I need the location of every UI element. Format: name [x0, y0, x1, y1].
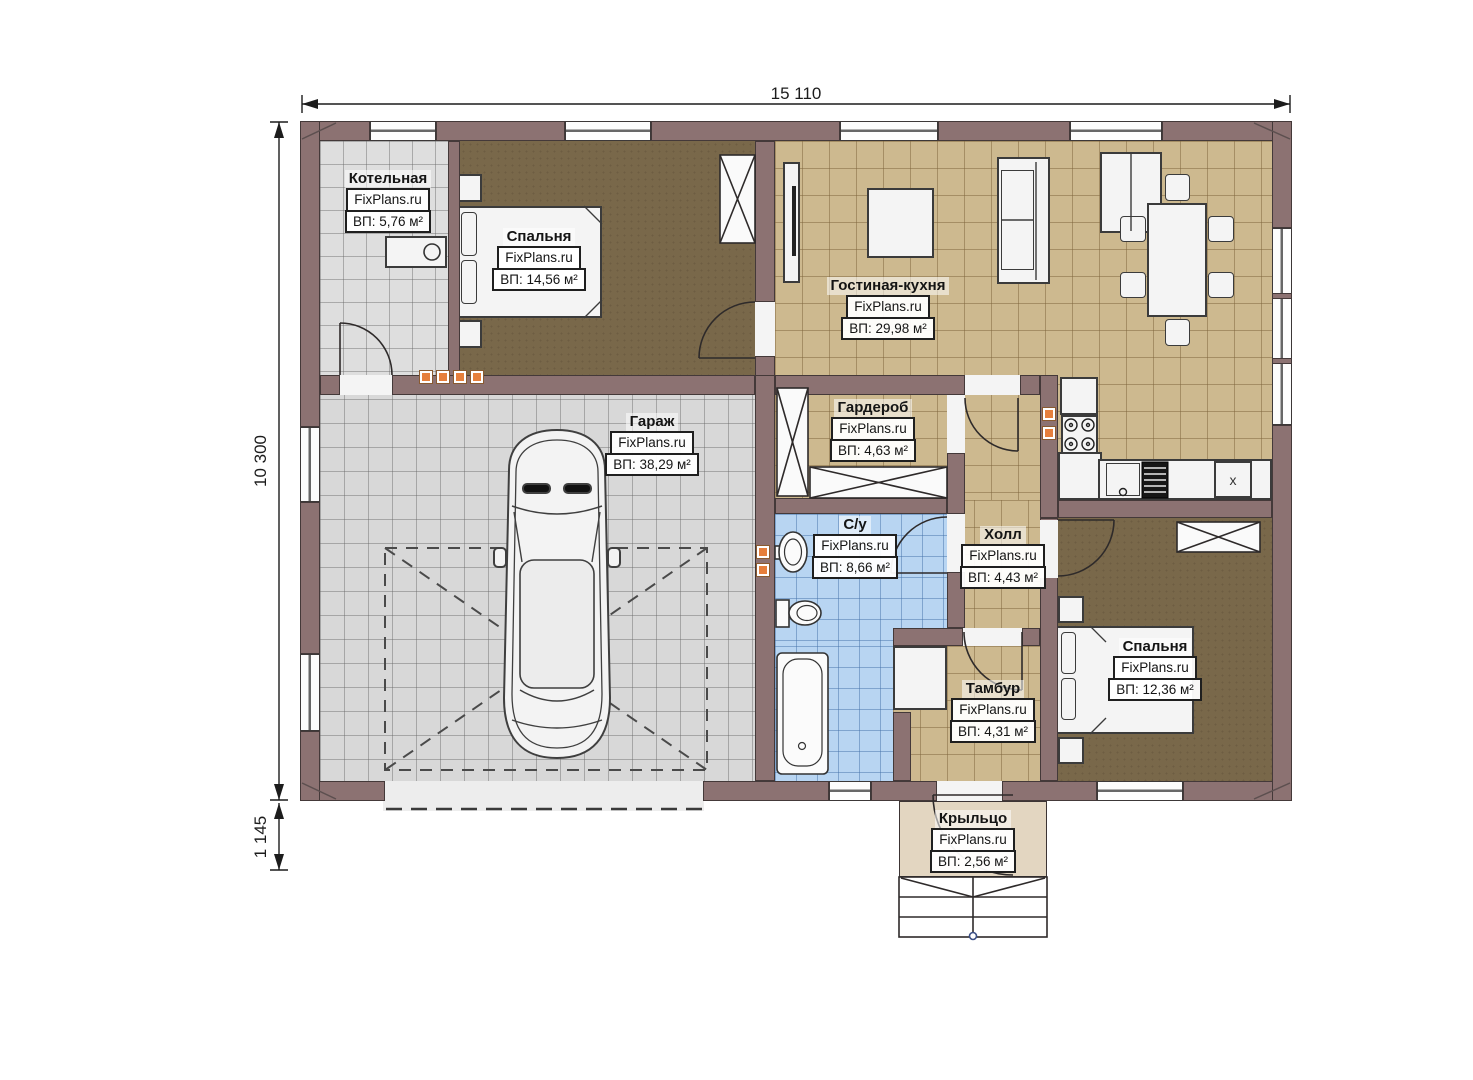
window-mullion	[1272, 293, 1292, 299]
door-opening	[340, 375, 392, 395]
room-area: ВП: 2,56 м²	[930, 850, 1016, 874]
room-label-wardrobe: Гардероб FixPlans.ru ВП: 4,63 м²	[806, 399, 940, 462]
coffee-table	[867, 188, 934, 258]
room-name: Гардероб	[834, 399, 913, 417]
room-area: ВП: 12,36 м²	[1108, 678, 1202, 702]
wall	[775, 498, 947, 514]
watermark: FixPlans.ru	[846, 295, 930, 319]
wall	[893, 628, 963, 646]
kitchen-sink-icon	[1106, 463, 1140, 496]
window	[1097, 781, 1183, 801]
wall	[1022, 628, 1040, 646]
room-area: ВП: 29,98 м²	[841, 317, 935, 341]
vent-icon	[1043, 427, 1055, 439]
dimension-height: 10 300	[251, 411, 271, 511]
nightstand	[1058, 596, 1084, 623]
vent-icon	[757, 564, 769, 576]
dimension-width: 15 110	[746, 84, 846, 104]
room-label-tambour: Тамбур FixPlans.ru ВП: 4,31 м²	[928, 680, 1058, 743]
wall	[1040, 375, 1058, 518]
room-name: Спальня	[503, 228, 576, 246]
room-name: Гостиная-кухня	[827, 277, 950, 295]
window	[1272, 228, 1292, 425]
wall	[300, 502, 320, 654]
watermark: FixPlans.ru	[831, 417, 915, 441]
vent-icon	[437, 371, 449, 383]
garage-apron	[383, 781, 704, 811]
door-opening	[937, 781, 1002, 801]
vent-icon	[471, 371, 483, 383]
wall	[755, 141, 775, 302]
watermark: FixPlans.ru	[610, 431, 694, 455]
appliance-x: x	[1214, 461, 1252, 498]
vent-icon	[1043, 408, 1055, 420]
room-area: ВП: 4,31 м²	[950, 720, 1036, 744]
wall	[1002, 781, 1097, 801]
room-label-bedroom2: Спальня FixPlans.ru ВП: 12,36 м²	[1085, 638, 1225, 701]
wall	[300, 121, 320, 427]
watermark: FixPlans.ru	[951, 698, 1035, 722]
chair	[1120, 216, 1146, 242]
door-opening	[963, 628, 1022, 646]
window-mullion	[1272, 358, 1292, 364]
boiler-unit	[385, 236, 447, 268]
room-label-garage: Гараж FixPlans.ru ВП: 38,29 м²	[580, 413, 724, 476]
room-name: С/у	[839, 516, 870, 534]
vent-icon	[454, 371, 466, 383]
wall	[775, 375, 965, 395]
stove-icon	[1061, 415, 1098, 457]
wall	[947, 453, 965, 514]
wall	[1272, 121, 1292, 228]
vent-icon	[757, 546, 769, 558]
wall	[320, 375, 340, 395]
room-area: ВП: 8,66 м²	[812, 556, 898, 580]
room-label-bedroom1: Спальня FixPlans.ru ВП: 14,56 м²	[472, 228, 606, 291]
room-area: ВП: 38,29 м²	[605, 453, 699, 477]
room-name: Котельная	[345, 170, 432, 188]
room-name: Спальня	[1119, 638, 1192, 656]
window	[300, 427, 320, 502]
dimension-porch: 1 145	[251, 787, 271, 887]
wall	[871, 781, 937, 801]
appliance-x-label: x	[1230, 472, 1237, 488]
bathroom-floor-lower	[775, 646, 893, 781]
nightstand	[1058, 737, 1084, 764]
window	[840, 121, 938, 141]
room-name: Холл	[980, 526, 1026, 544]
room-name: Тамбур	[962, 680, 1024, 698]
room-name: Крыльцо	[935, 810, 1011, 828]
fridge-icon	[1060, 377, 1098, 415]
room-label-porch: Крыльцо FixPlans.ru ВП: 2,56 м²	[905, 810, 1041, 873]
room-area: ВП: 5,76 м²	[345, 210, 431, 234]
kitchen-counter	[1058, 452, 1102, 500]
tv-icon	[792, 186, 796, 256]
stairs	[899, 877, 1047, 940]
room-label-bath: С/у FixPlans.ru ВП: 8,66 м²	[790, 516, 920, 579]
chair	[1208, 216, 1234, 242]
window	[300, 654, 320, 731]
room-area: ВП: 4,63 м²	[830, 439, 916, 463]
wall	[938, 121, 1070, 141]
window	[1070, 121, 1162, 141]
vent-icon	[420, 371, 432, 383]
watermark: FixPlans.ru	[346, 188, 430, 212]
watermark: FixPlans.ru	[497, 246, 581, 270]
wall	[300, 731, 320, 801]
door-opening	[965, 375, 1020, 395]
room-label-hall: Холл FixPlans.ru ВП: 4,43 м²	[948, 526, 1058, 589]
window	[565, 121, 651, 141]
wall	[893, 712, 911, 781]
chair	[1208, 272, 1234, 298]
wall	[755, 375, 775, 781]
door-opening	[947, 395, 965, 453]
room-name: Гараж	[626, 413, 679, 431]
watermark: FixPlans.ru	[931, 828, 1015, 852]
sofa-seat	[1001, 170, 1034, 270]
wall	[703, 781, 829, 801]
chair	[1165, 319, 1190, 346]
door-opening	[755, 302, 775, 356]
wall	[436, 121, 565, 141]
pillow	[1061, 632, 1076, 674]
watermark: FixPlans.ru	[813, 534, 897, 558]
watermark: FixPlans.ru	[1113, 656, 1197, 680]
pillow	[1061, 678, 1076, 720]
wall	[651, 121, 840, 141]
wall	[1058, 500, 1272, 518]
room-label-boiler: Котельная FixPlans.ru ВП: 5,76 м²	[326, 170, 450, 233]
window	[370, 121, 436, 141]
wall	[1272, 425, 1292, 801]
room-label-living: Гостиная-кухня FixPlans.ru ВП: 29,98 м²	[808, 277, 968, 340]
floor-plan: x	[0, 0, 1473, 1080]
chair	[1165, 174, 1190, 201]
chair	[1120, 272, 1146, 298]
window	[829, 781, 871, 801]
room-area: ВП: 4,43 м²	[960, 566, 1046, 590]
room-area: ВП: 14,56 м²	[492, 268, 586, 292]
wall	[1020, 375, 1040, 395]
watermark: FixPlans.ru	[961, 544, 1045, 568]
dining-table	[1147, 203, 1207, 317]
